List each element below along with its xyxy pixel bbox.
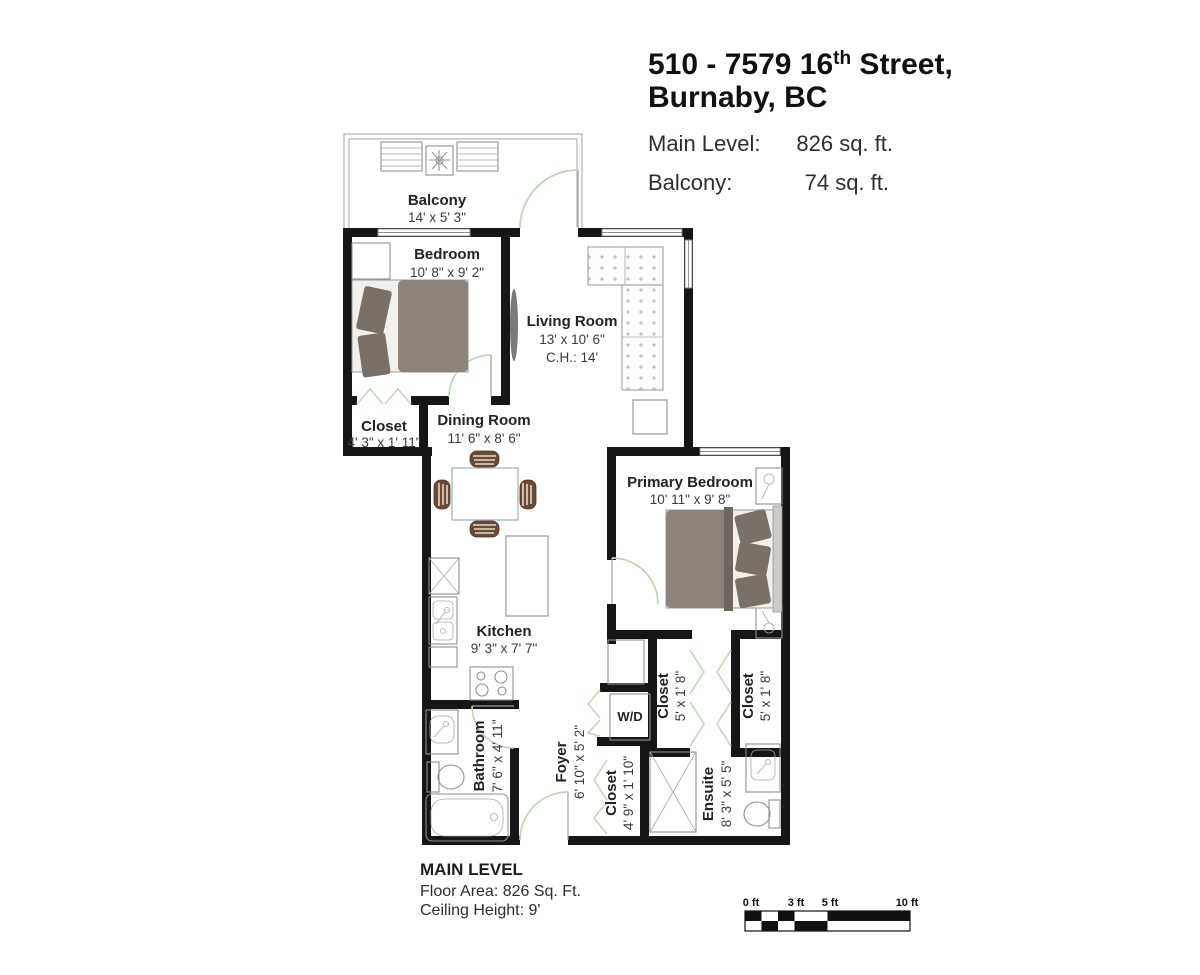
hall-closet-left-bifold	[690, 650, 704, 694]
dining-table	[452, 468, 518, 520]
bedroom-closet-dims: 4' 3" x 1' 11"	[347, 435, 420, 450]
balcony-door-opening	[520, 227, 578, 238]
hall-closet-right-dims: 5' x 1' 8"	[758, 671, 773, 722]
dining-furniture	[434, 451, 536, 537]
bedroom-closet-label: Closet	[361, 418, 407, 435]
balcony-label: Balcony	[408, 192, 467, 209]
scale-tick-5ft: 5 ft	[822, 897, 839, 909]
balcony-chair-right	[457, 142, 498, 171]
fridge	[429, 558, 459, 594]
foyer-closet-dims: 4' 9" x 1' 10"	[621, 756, 636, 830]
primary-bedroom-door	[612, 558, 658, 604]
foyer-label: Foyer	[553, 741, 570, 782]
kitchen-dims: 9' 3" x 7' 7"	[471, 641, 538, 656]
balcony-plant	[426, 146, 453, 175]
bedroom-furniture	[352, 243, 518, 378]
floor-plan-page: 510 - 7579 16th Street, Burnaby, BC Main…	[0, 0, 1200, 975]
primary-bedroom-window	[700, 448, 780, 455]
primary-bed	[666, 506, 782, 612]
hall-closet-left-label: Closet	[655, 673, 672, 719]
bathtub	[426, 794, 508, 841]
kitchen-label: Kitchen	[476, 623, 531, 640]
bathroom-toilet	[427, 762, 464, 792]
wall-console	[510, 289, 518, 361]
hall-closet-right-label: Closet	[740, 673, 757, 719]
bedroom-closet-bifold	[357, 389, 383, 404]
wd-closet-bifold	[588, 690, 600, 718]
main-level-area-label: Main Level:	[648, 131, 761, 156]
primary-bedroom-dims: 10' 11" x 9' 8"	[650, 492, 731, 507]
dining-chair-right	[520, 480, 536, 509]
scale-tick-3ft: 3 ft	[788, 897, 805, 909]
kitchen-sink	[429, 597, 457, 644]
bathroom-label: Bathroom	[471, 721, 488, 792]
balcony-area-value: 74 sq. ft.	[805, 170, 889, 195]
floor-area-text: Floor Area: 826 Sq. Ft.	[420, 883, 581, 900]
dining-chair-left	[434, 480, 450, 509]
bedroom-window	[378, 229, 470, 236]
bedroom-dims: 10' 8" x 9' 2"	[410, 265, 484, 280]
kitchen-counter	[429, 647, 457, 667]
scale-tick-0ft: 0 ft	[743, 897, 760, 909]
ceiling-height-text: Ceiling Height: 9'	[420, 902, 540, 919]
foyer-closet-label: Closet	[603, 770, 620, 816]
ensuite-label: Ensuite	[700, 767, 717, 821]
bedroom-label: Bedroom	[414, 246, 480, 263]
address-line-2: Burnaby, BC	[648, 81, 827, 114]
entry-door	[520, 792, 568, 840]
hall-closet-left-dims: 5' x 1' 8"	[673, 671, 688, 722]
bedroom-nightstand	[352, 243, 390, 279]
hall-closet-right-bifold	[717, 650, 731, 694]
dining-chair-top	[470, 451, 499, 467]
balcony-area-label: Balcony:	[648, 170, 732, 195]
balcony-dims: 14' x 5' 3"	[408, 210, 466, 225]
washer-dryer-label: W/D	[617, 709, 642, 724]
living-room-dims: 13' x 10' 6"	[539, 332, 605, 347]
dining-room-label: Dining Room	[437, 412, 530, 429]
scale-bar: 0 ft 3 ft 5 ft 10 ft	[743, 897, 919, 931]
bedroom-bed	[352, 280, 468, 378]
living-room-side-window	[685, 240, 692, 288]
stove	[470, 667, 513, 700]
foyer-dims: 6' 10" x 5' 2"	[572, 725, 587, 799]
living-room-ceiling: C.H.: 14'	[546, 350, 598, 365]
address-line-1: 510 - 7579 16th Street,	[648, 48, 953, 81]
living-room-label: Living Room	[527, 313, 618, 330]
footer-block: MAIN LEVEL Floor Area: 826 Sq. Ft. Ceili…	[420, 860, 581, 919]
primary-bedroom-label: Primary Bedroom	[627, 474, 753, 491]
washer-dryer-unit: W/D	[610, 694, 650, 740]
floor-plan-canvas: 510 - 7579 16th Street, Burnaby, BC Main…	[0, 0, 1200, 975]
dining-chair-bottom	[470, 521, 499, 537]
balcony-door	[520, 170, 578, 228]
kitchen-island	[506, 536, 548, 616]
scale-tick-10ft: 10 ft	[896, 897, 919, 909]
hall-cabinet	[608, 640, 644, 684]
level-title: MAIN LEVEL	[420, 860, 523, 879]
side-table	[633, 400, 667, 434]
dining-room-dims: 11' 6" x 8' 6"	[447, 431, 520, 446]
ensuite-dims: 8' 3" x 5' 5"	[719, 761, 734, 828]
title-block: 510 - 7579 16th Street, Burnaby, BC Main…	[648, 48, 953, 195]
main-level-area-value: 826 sq. ft.	[796, 131, 893, 156]
kitchen-fixtures	[429, 536, 548, 700]
bathroom-dims: 7' 6" x 4' 11"	[490, 719, 505, 792]
living-room-top-window	[602, 229, 682, 236]
balcony-chair-left	[381, 142, 422, 171]
ensuite-toilet	[744, 800, 780, 828]
shower	[650, 752, 696, 832]
primary-nightstand-top	[756, 468, 782, 504]
